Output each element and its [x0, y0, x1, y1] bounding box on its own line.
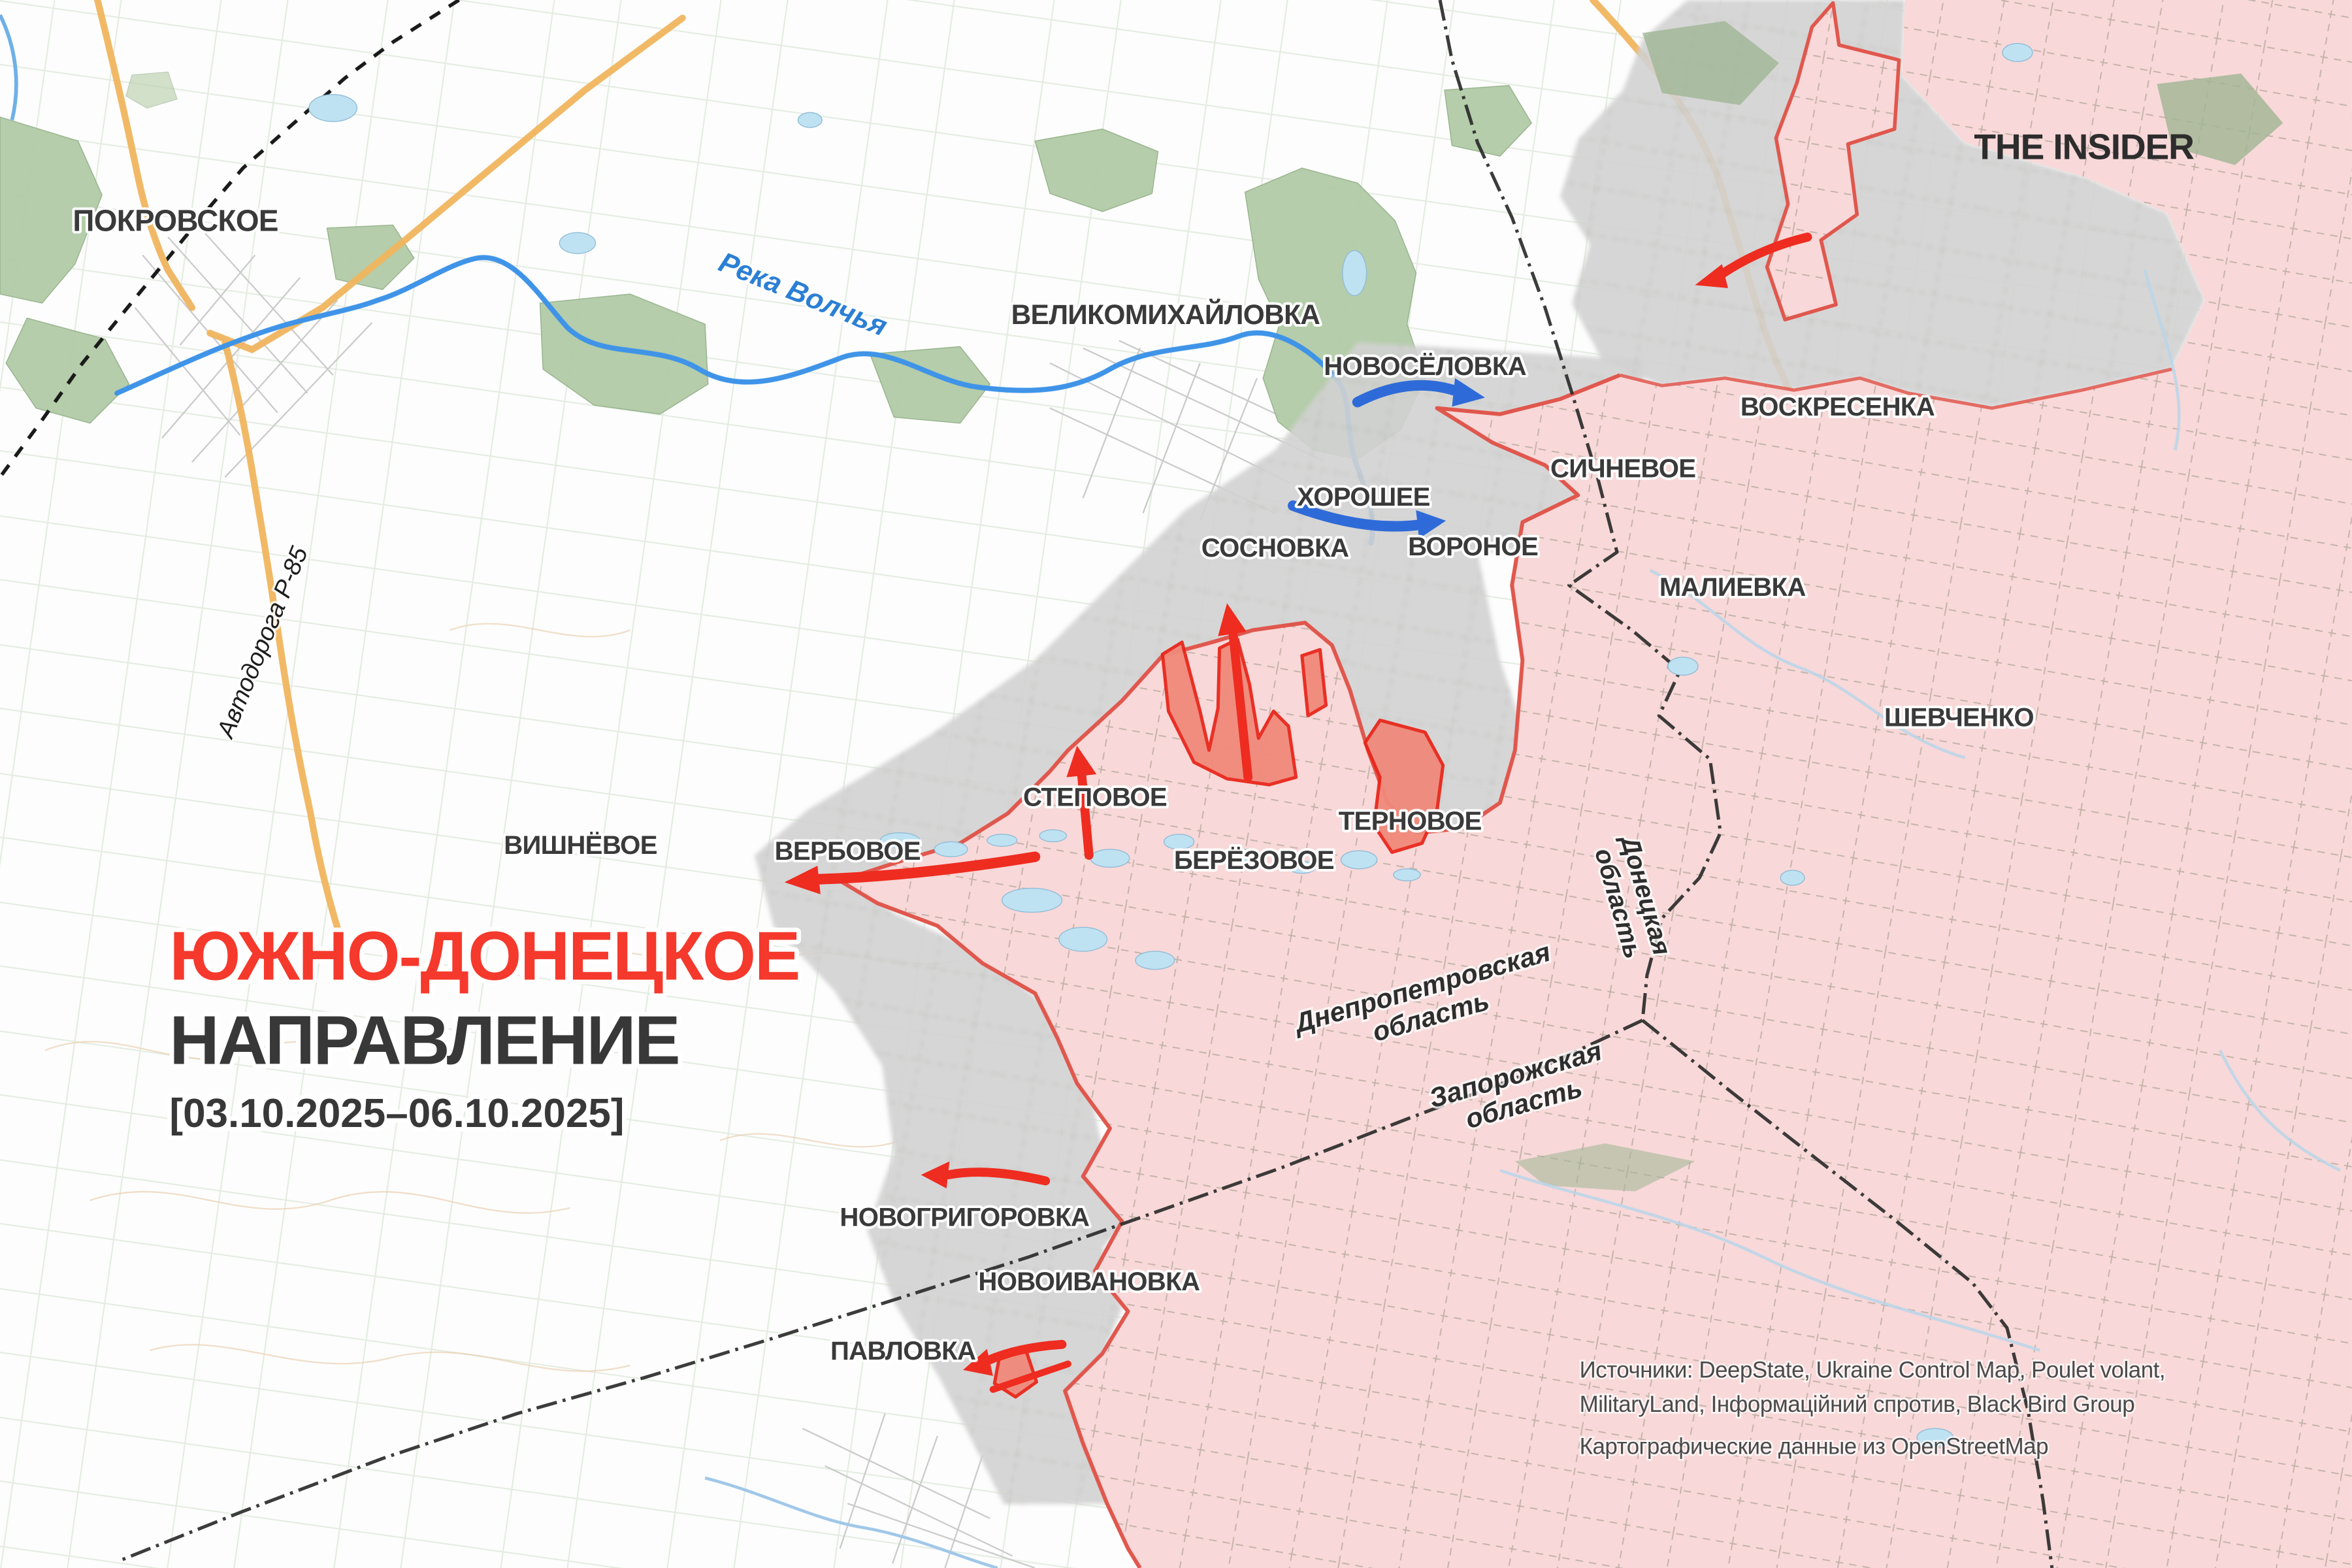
- label-verbovoe: ВЕРБОВОЕ: [775, 836, 921, 866]
- label-pavlovka: ПАВЛОВКА: [830, 1336, 975, 1365]
- label-sosnovka: СОСНОВКА: [1201, 533, 1349, 563]
- title-date-range: [03.10.2025–06.10.2025]: [169, 1091, 624, 1136]
- map-canvas: ПОКРОВСКОЕ ВЕЛИКОМИХАЙЛОВКА НОВОСЁЛОВКА …: [0, 0, 2352, 1568]
- label-velikomikhaylovka: ВЕЛИКОМИХАЙЛОВКА: [1011, 299, 1320, 331]
- title-line1: ЮЖНО-ДОНЕЦКОЕ: [169, 918, 799, 995]
- sources-line1: Источники: DeepState, Ukraine Control Ma…: [1580, 1357, 2166, 1382]
- label-beryozovoe: БЕРЁЗОВОЕ: [1174, 845, 1334, 875]
- label-shevchenko: ШЕВЧЕНКО: [1884, 703, 2034, 732]
- brand-logo: THE INSIDER: [1974, 126, 2194, 167]
- sources-line3: Картографические данные из OpenStreetMap: [1580, 1433, 2048, 1459]
- label-pokrovskoe: ПОКРОВСКОЕ: [73, 204, 278, 238]
- label-vishnyovoe: ВИШНЁВОЕ: [504, 830, 657, 860]
- label-ternovoe: ТЕРНОВОЕ: [1339, 806, 1482, 836]
- salient-sosnovka-sliver: [1302, 649, 1326, 715]
- label-stepovoe: СТЕПОВОЕ: [1023, 782, 1167, 811]
- label-voskresenka: ВОСКРЕСЕНКА: [1740, 392, 1935, 421]
- label-malievka: МАЛИЕВКА: [1659, 572, 1806, 602]
- sources-line2: MilitaryLand, Інформаційний спротив, Bla…: [1580, 1392, 2135, 1417]
- label-novogrigorovka: НОВОГРИГОРОВКА: [840, 1202, 1089, 1232]
- title-line2: НАПРАВЛЕНИЕ: [169, 1002, 679, 1079]
- label-sichnevoe: СИЧНЕВОЕ: [1550, 453, 1695, 483]
- label-novosyolovka: НОВОСЁЛОВКА: [1324, 351, 1526, 381]
- label-khoroshee: ХОРОШЕЕ: [1297, 482, 1430, 512]
- label-novoivanovka: НОВОИВАНОВКА: [978, 1267, 1200, 1296]
- label-voronoe: ВОРОНОЕ: [1408, 532, 1538, 561]
